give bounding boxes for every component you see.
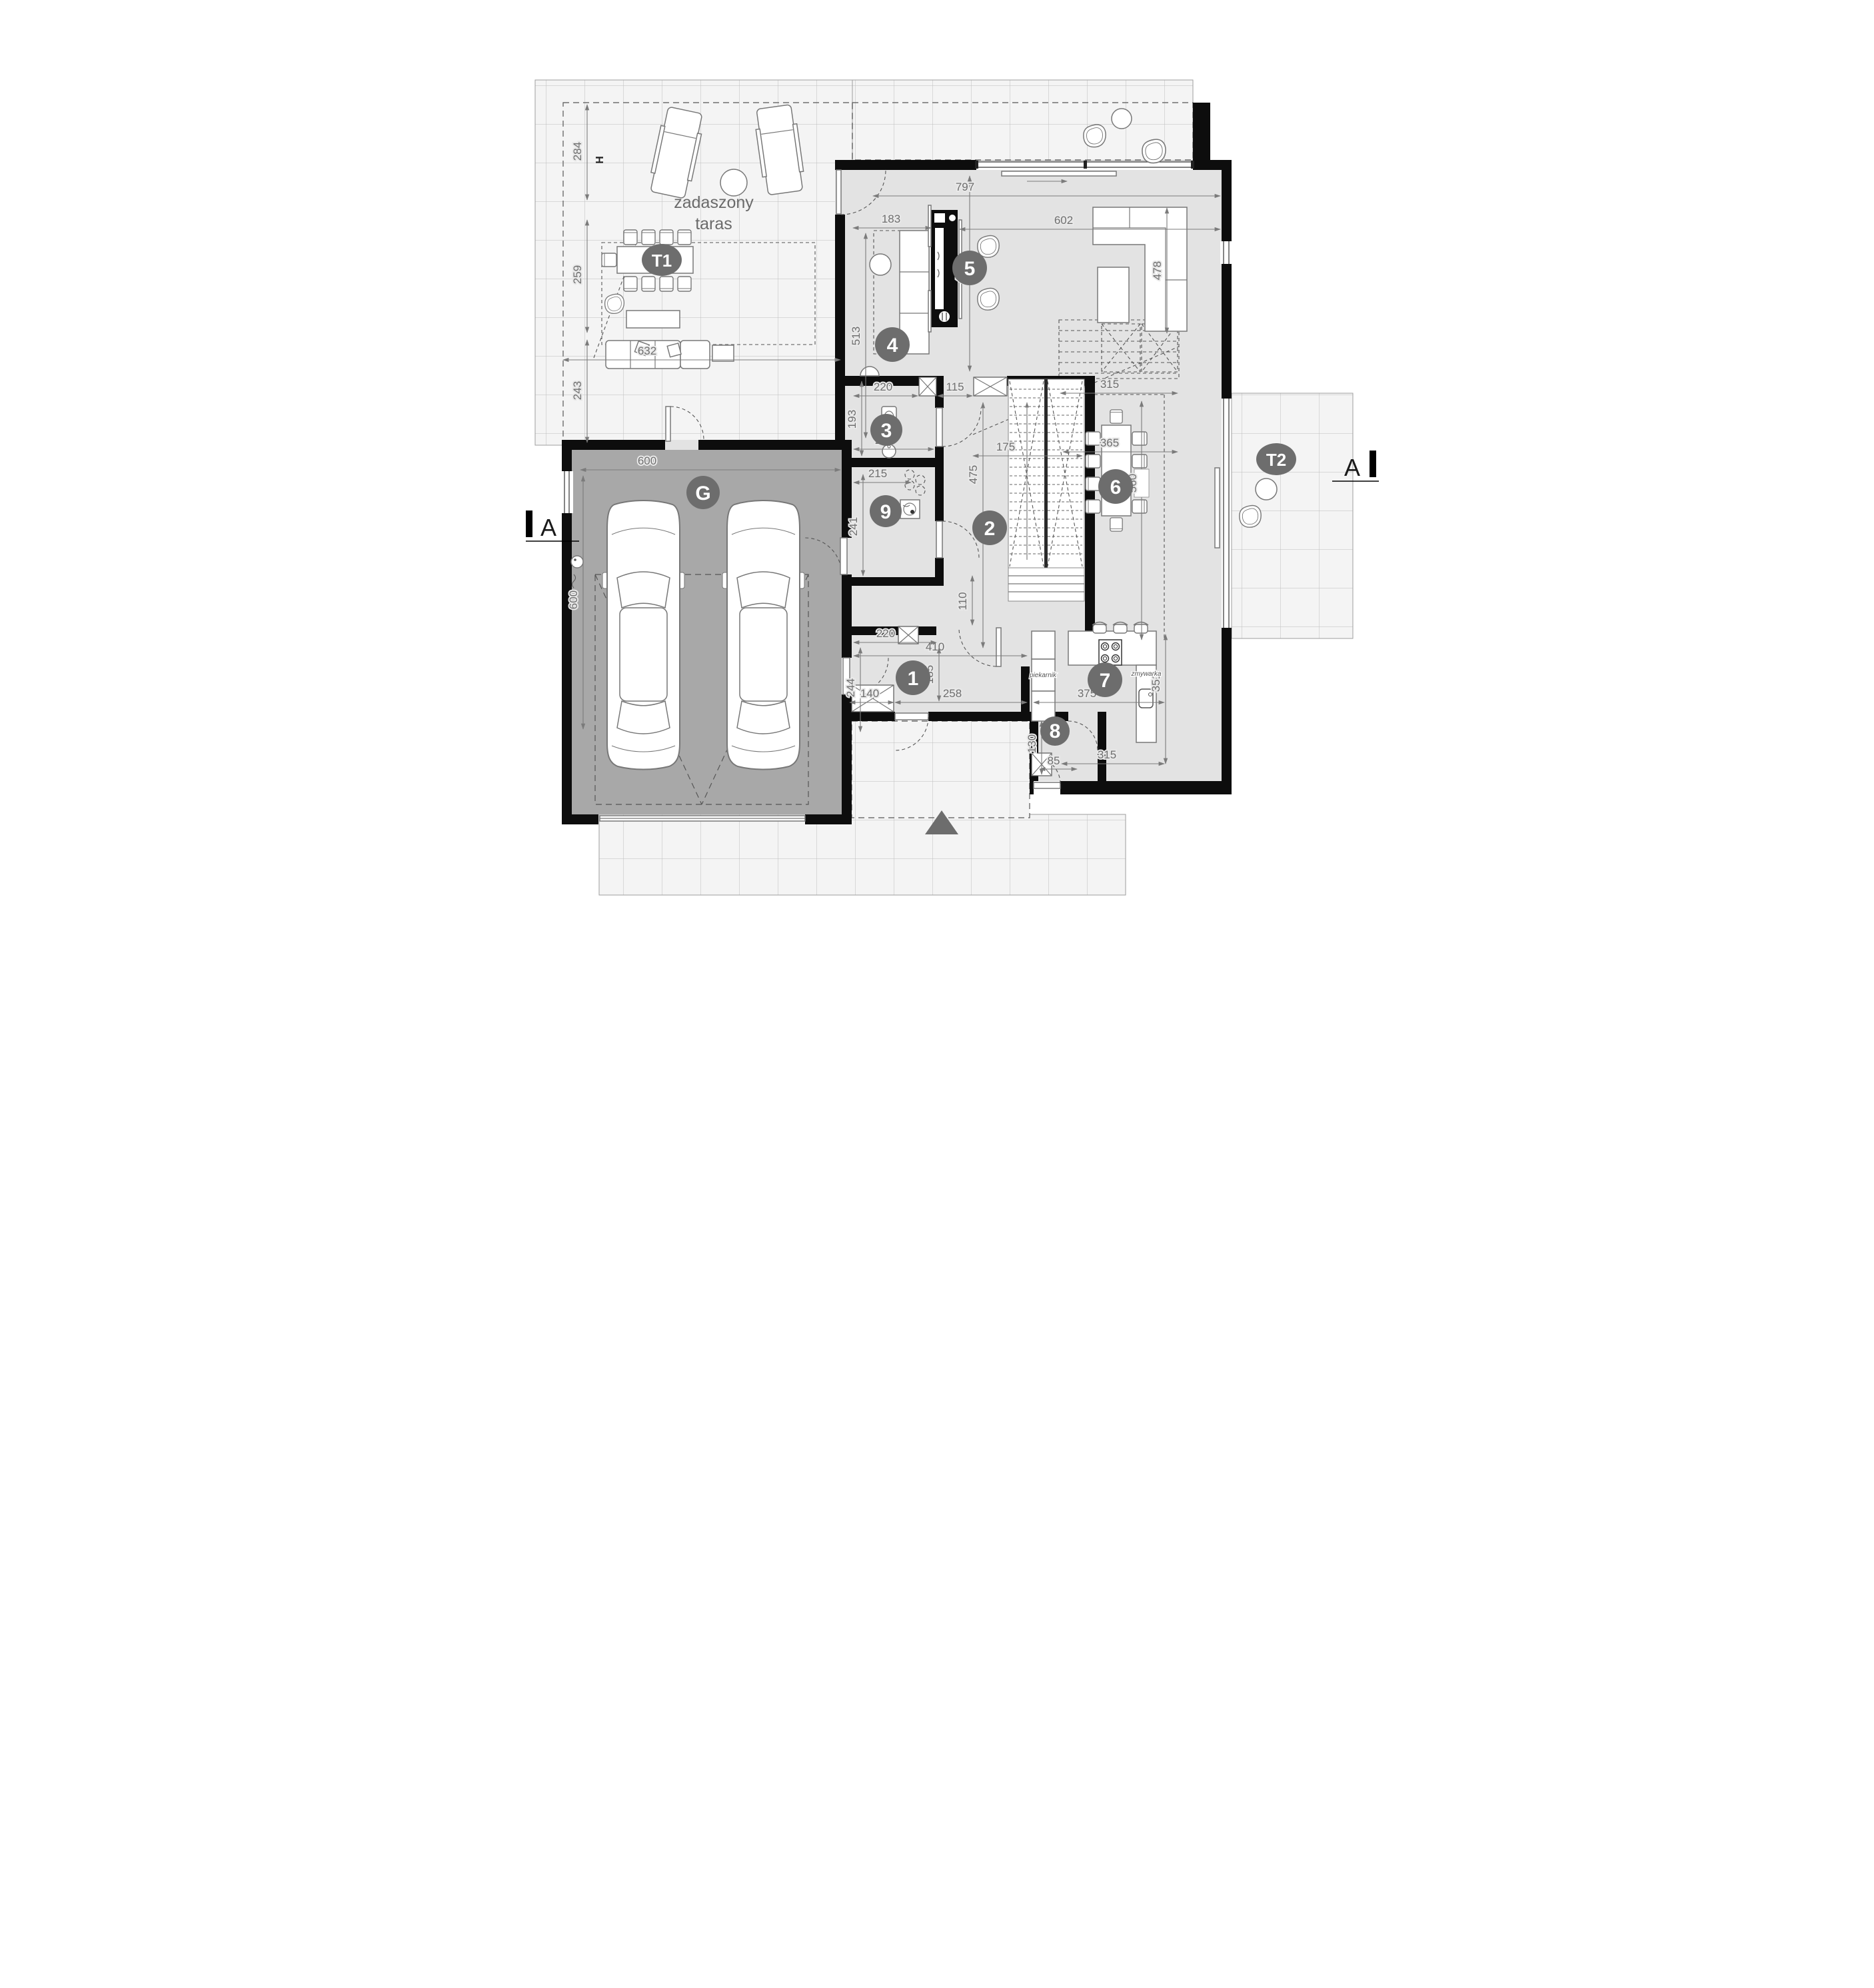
car-1	[602, 500, 684, 770]
chair	[1132, 455, 1147, 468]
door-leaf	[996, 628, 1001, 666]
room-badge-9: 9	[870, 495, 902, 527]
dim-258: 258	[943, 687, 962, 700]
room-badge-6: 6	[1098, 469, 1133, 504]
svg-text:7: 7	[1100, 670, 1111, 692]
tv-panel	[928, 291, 931, 332]
chair	[1110, 518, 1122, 531]
chair	[642, 230, 655, 245]
room-badge-3: 3	[870, 414, 902, 446]
pillow	[667, 343, 681, 357]
armchair	[978, 288, 999, 310]
dim-602: 602	[1054, 214, 1073, 227]
svg-text:A: A	[540, 514, 556, 541]
dim-175: 175	[996, 441, 1015, 453]
pouf	[1142, 139, 1166, 163]
dim-244: 244	[844, 678, 857, 697]
dim-183: 183	[882, 213, 900, 225]
coffee-table-round	[870, 254, 891, 275]
coffee-table	[1098, 267, 1129, 323]
dim-110: 110	[956, 592, 969, 610]
svg-text:1: 1	[908, 668, 919, 690]
floor-plan-drawing: 284 259 243 632 600 600 183 513 453 797 …	[468, 8, 1405, 1002]
room-badge-7: 7	[1088, 662, 1122, 697]
dim-85: 85	[1048, 754, 1060, 767]
boiler	[900, 500, 920, 518]
room-badge-1: 1	[896, 660, 930, 695]
dim-797: 797	[956, 181, 974, 193]
side-table-round	[1112, 109, 1132, 129]
dim-513: 513	[850, 327, 862, 345]
svg-text:4: 4	[887, 335, 898, 357]
svg-text:G: G	[695, 483, 710, 504]
chair	[1086, 432, 1100, 445]
t2-sliding-panel	[1215, 468, 1220, 548]
garage-window	[560, 471, 573, 513]
room-badge-5: 5	[952, 251, 987, 285]
chair	[1132, 432, 1147, 445]
tv-panel	[928, 205, 931, 247]
wardrobe-room3-niche	[919, 377, 936, 396]
dim-315b: 315	[1098, 748, 1116, 761]
dim-220c: 220	[876, 627, 895, 640]
dim-220a: 220	[874, 381, 892, 393]
room-badge-4: 4	[875, 327, 910, 362]
chair	[678, 230, 691, 245]
dim-600h: 600	[567, 590, 580, 609]
side-table-round	[720, 169, 747, 196]
sliding-door-panel	[1002, 171, 1116, 176]
chair	[624, 277, 637, 291]
terrace-covered-label-line1: zadaszony	[674, 193, 754, 212]
chair	[660, 230, 673, 245]
wardrobe-stair-head	[974, 377, 1007, 396]
washbasin-round	[882, 445, 896, 458]
svg-text:8: 8	[1050, 720, 1061, 742]
driveway-paving	[599, 814, 1126, 895]
chair	[1086, 477, 1100, 491]
dim-259: 259	[571, 265, 584, 284]
hose-bib-label: H	[594, 156, 606, 164]
side-table-round	[1256, 479, 1277, 500]
door-leaf	[936, 521, 942, 558]
chair	[678, 277, 691, 291]
wardrobe-room1-top	[898, 626, 918, 644]
door-leaf	[1034, 782, 1060, 788]
door-leaf	[836, 170, 841, 214]
door-leaf	[895, 713, 928, 720]
svg-text:6: 6	[1110, 477, 1122, 498]
chair	[1086, 455, 1100, 468]
chaise	[680, 341, 710, 369]
dim-243: 243	[571, 381, 584, 400]
terrace2-badge: T2	[1256, 443, 1296, 475]
dim-140: 140	[860, 687, 879, 700]
side-table	[712, 345, 734, 361]
pouf	[1240, 505, 1261, 527]
svg-text:9: 9	[880, 501, 892, 523]
door-leaf	[840, 538, 847, 574]
garage-badge: G	[686, 476, 720, 509]
dim-241: 241	[847, 517, 860, 536]
pouf	[1084, 125, 1106, 147]
right-window	[1220, 241, 1233, 264]
chair	[624, 230, 637, 245]
chair	[1110, 410, 1122, 423]
floor-plan-page: 284 259 243 632 600 600 183 513 453 797 …	[468, 8, 1405, 1002]
pouf	[605, 294, 624, 313]
terrace1-badge: T1	[642, 244, 682, 276]
room-badge-8: 8	[1040, 716, 1070, 746]
hob	[1099, 640, 1122, 665]
dim-475: 475	[967, 465, 980, 484]
dim-115: 115	[946, 381, 964, 393]
armchair	[978, 235, 999, 257]
tall-unit	[1032, 691, 1055, 721]
terrace-covered-label-line2: taras	[695, 215, 732, 233]
dim-365: 365	[1100, 437, 1119, 449]
car-2	[722, 500, 804, 770]
porch-paving	[852, 721, 1030, 818]
chair	[1086, 500, 1100, 513]
dim-600w: 600	[638, 455, 656, 467]
outdoor-bench	[626, 311, 680, 328]
terrace-top-strip-paving	[852, 80, 1193, 161]
svg-text:T2: T2	[1266, 450, 1286, 470]
dim-215: 215	[868, 467, 887, 480]
dim-284: 284	[571, 142, 584, 161]
dim-193: 193	[846, 410, 858, 429]
garage-sectional-door	[600, 816, 805, 821]
dim-632: 632	[638, 345, 656, 357]
chair	[642, 277, 655, 291]
chair	[660, 277, 673, 291]
dim-315a: 315	[1100, 378, 1119, 391]
svg-text:3: 3	[881, 420, 892, 442]
svg-text:2: 2	[984, 518, 996, 540]
svg-text:T1: T1	[652, 251, 672, 271]
svg-text:5: 5	[964, 258, 976, 280]
dim-478: 478	[1151, 261, 1164, 280]
oven-label: piekarnik	[1029, 672, 1057, 679]
svg-text:A: A	[1344, 454, 1360, 481]
tall-unit	[1032, 631, 1055, 659]
chair	[1132, 500, 1147, 513]
chair	[602, 253, 616, 267]
door-leaf	[666, 407, 670, 441]
dishwasher-label: zmywarka	[1130, 670, 1161, 678]
dim-130: 130	[1026, 734, 1038, 753]
door-leaf	[936, 408, 942, 447]
staircase	[1008, 379, 1084, 601]
room-badge-2: 2	[972, 510, 1007, 545]
